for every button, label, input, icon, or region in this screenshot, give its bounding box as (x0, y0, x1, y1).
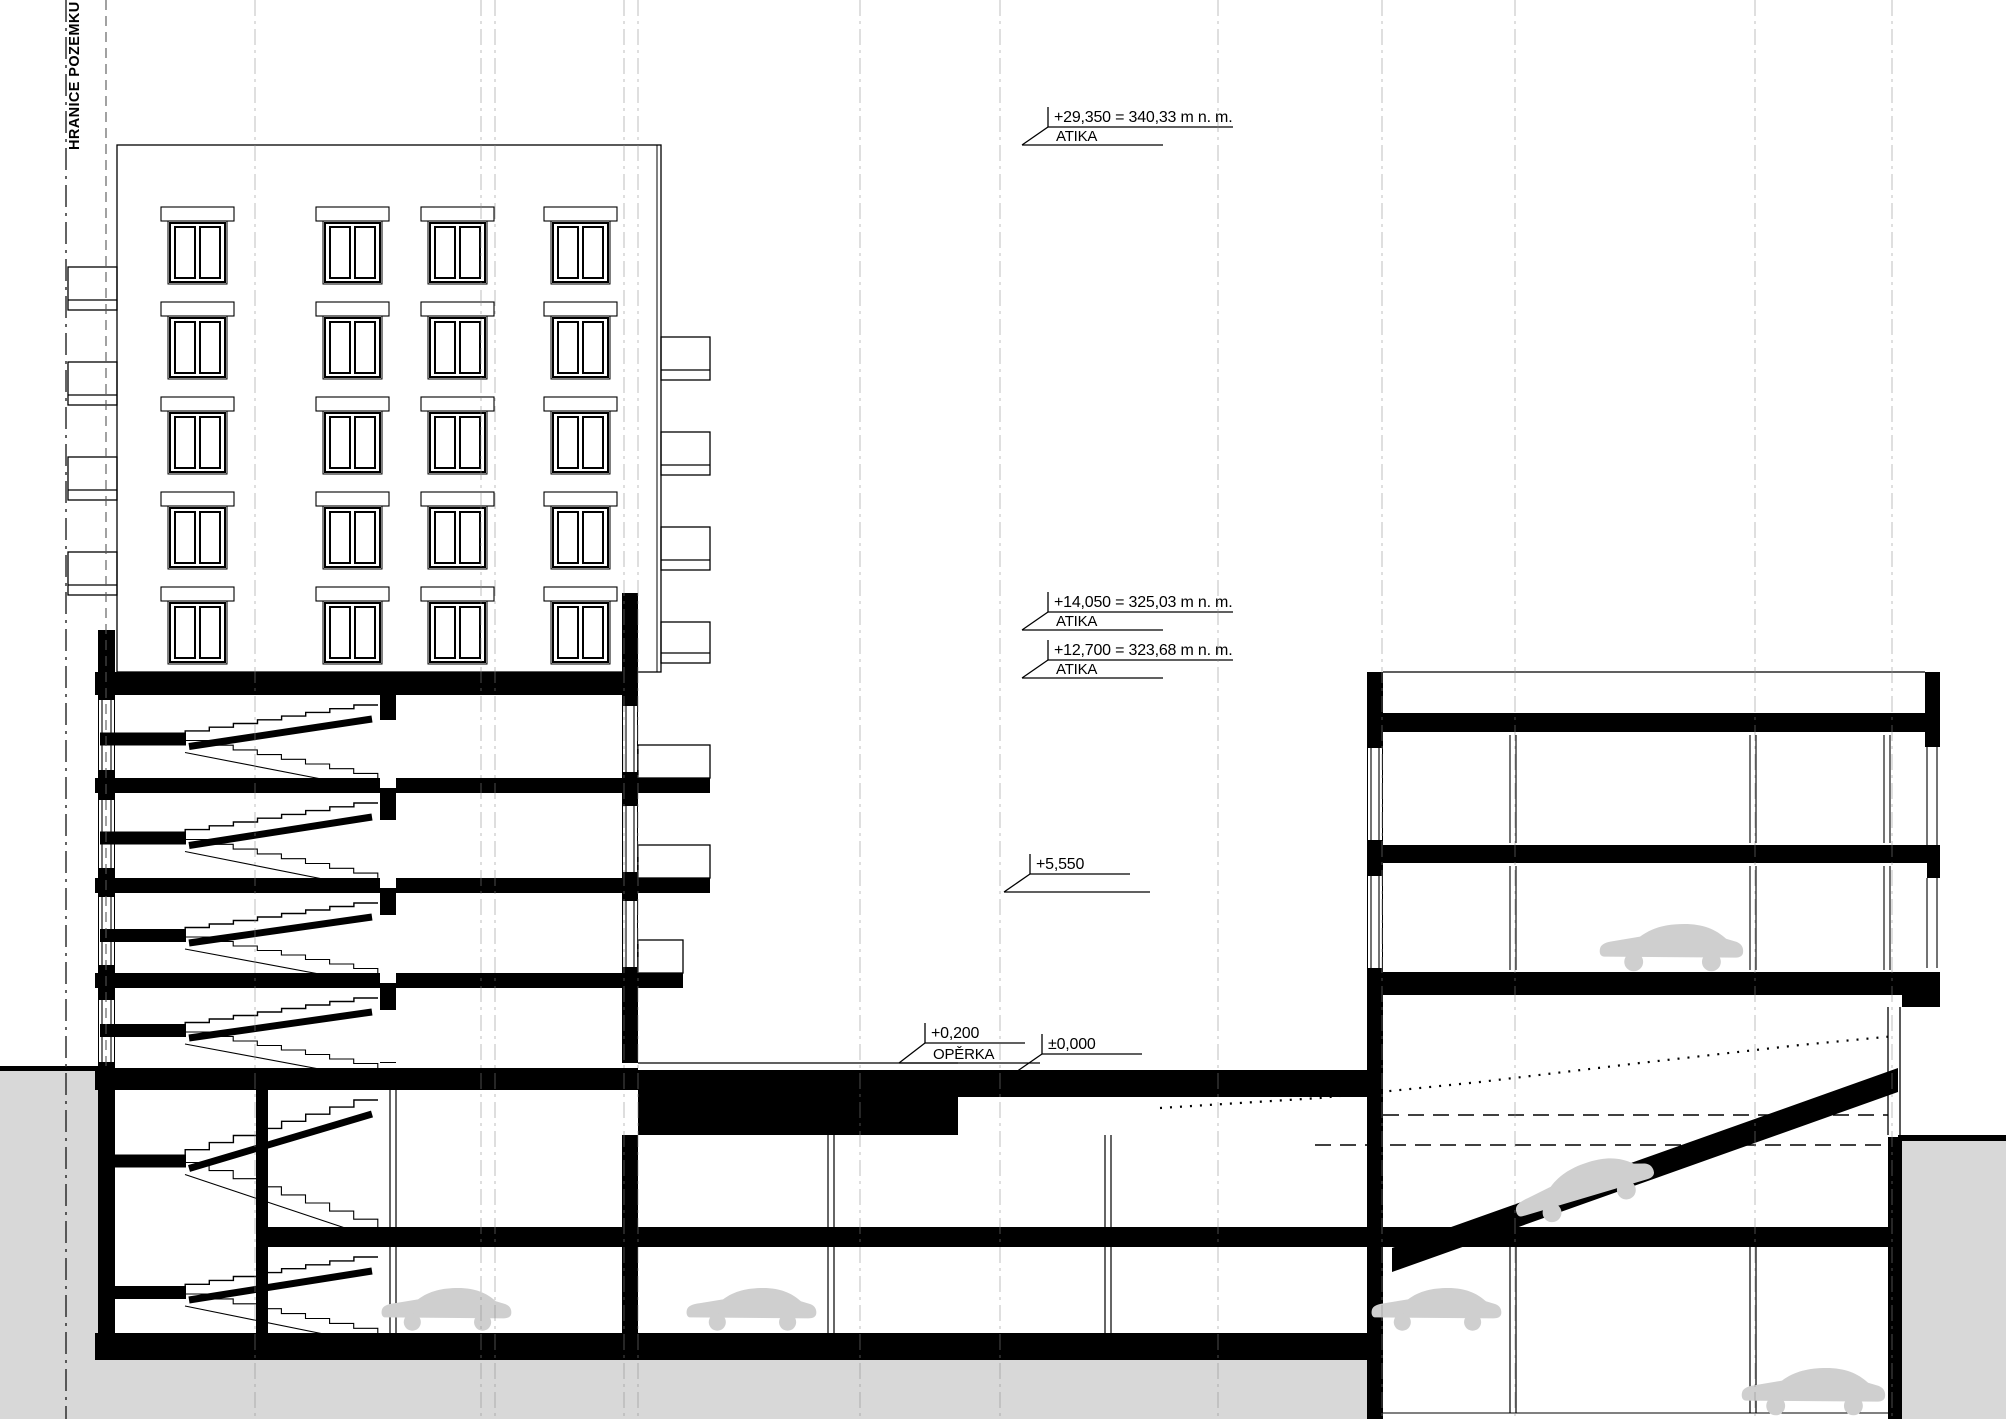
facade-window-frame (325, 318, 380, 377)
level-marker-atika-14050: +14,050 = 325,03 m n. m. ATIKA (1022, 592, 1233, 630)
scissor-stairs (100, 705, 378, 1345)
facade-window-frame (325, 508, 380, 567)
facade-window-pane (558, 512, 578, 563)
level-marker-operka-0200: +0,200 OPĚRKA (899, 1023, 1040, 1063)
facade-window-pane (583, 417, 603, 468)
facade-window-frame (325, 603, 380, 662)
facade-window-pane (460, 417, 480, 468)
marker-flag-diagonal (1022, 127, 1048, 145)
balcony-section (638, 845, 710, 878)
stair-landing-slab (100, 1155, 186, 1168)
facade-window-pane (460, 227, 480, 278)
level-marker-atika-29350: +29,350 = 340,33 m n. m. ATIKA (1022, 107, 1233, 145)
facade-window-frame (325, 413, 380, 472)
right-building-roof-slab (1383, 713, 1940, 732)
facade-window-pane (330, 417, 350, 468)
facade-window-outer (168, 411, 227, 474)
left-wing-roof-slab (95, 672, 638, 695)
facade-window-outer (428, 221, 487, 284)
facade-window-lintel (544, 492, 617, 506)
wall-window-gap (1368, 876, 1382, 968)
facade-window-outer (428, 506, 487, 569)
facade-window-frame (430, 508, 485, 567)
facade-window-outer (168, 316, 227, 379)
stair-flight-slab (189, 719, 372, 747)
right-building-floor-slab (1383, 845, 1940, 863)
facade-window-pane (558, 227, 578, 278)
facade-window-outer (168, 506, 227, 569)
marker-name: ATIKA (1056, 128, 1097, 145)
wall-window-gap (1924, 878, 1940, 968)
facade-window-pane (200, 512, 220, 563)
facade-window-pane (200, 322, 220, 373)
terrain-left-surface-line (0, 1066, 100, 1071)
stair-flight-slab (189, 1271, 372, 1300)
balcony-west (68, 457, 117, 500)
balcony-section (638, 940, 683, 973)
marker-flag-diagonal (1022, 660, 1048, 678)
facade-window-outer (323, 411, 382, 474)
facade-window-outer (323, 601, 382, 664)
facade-window-lintel (421, 302, 494, 316)
facade-window-lintel (161, 302, 234, 316)
interior-door-gap (380, 915, 396, 983)
interior-door-gap (380, 820, 396, 888)
facade-window-lintel (161, 587, 234, 601)
facade-window-outer (323, 316, 382, 379)
section-cut-elements (95, 593, 1940, 1419)
basement-b1-slab (268, 1227, 1902, 1247)
facade-window-lintel (316, 587, 389, 601)
level-marker-atika-12700: +12,700 = 323,68 m n. m. ATIKA (1022, 640, 1233, 678)
facade-window-outer (168, 601, 227, 664)
stair-flight-steps-far (185, 1294, 378, 1333)
facade-window-outer (551, 411, 610, 474)
balcony-west (68, 362, 117, 405)
facade-window-outer (168, 221, 227, 284)
facade-window-outer (428, 601, 487, 664)
facade-window-lintel (421, 397, 494, 411)
facade-window-lintel (421, 492, 494, 506)
facade-window-pane (583, 607, 603, 658)
marker-value: +14,050 = 325,03 m n. m. (1054, 594, 1232, 611)
facade-window-pane (435, 512, 455, 563)
basement-bottom-slab (95, 1333, 1367, 1360)
facade-window-pane (175, 607, 195, 658)
marker-value: +0,200 (931, 1025, 979, 1042)
facade-window-outer (551, 601, 610, 664)
facade-window-outer (551, 221, 610, 284)
stair-landing-slab (100, 1024, 186, 1037)
wall-window-gap (623, 901, 637, 967)
facade-window-pane (558, 417, 578, 468)
stair-flight-slab (189, 917, 372, 943)
marker-value: +29,350 = 340,33 m n. m. (1054, 109, 1232, 126)
stair-flight-steps (185, 1100, 378, 1157)
balcony-section (638, 745, 710, 778)
facade-window-pane (175, 512, 195, 563)
facade-window-pane (355, 322, 375, 373)
facade-window-frame (553, 318, 608, 377)
facade-window-frame (170, 318, 225, 377)
facade-window-lintel (421, 207, 494, 221)
facade-window-lintel (316, 492, 389, 506)
facade-window-frame (553, 508, 608, 567)
car-icon (687, 1288, 817, 1331)
left-wing-ground-slab (95, 1068, 638, 1090)
facade-window-pane (583, 322, 603, 373)
marker-value: +5,550 (1036, 856, 1084, 873)
right-building-slab-edge-block (1927, 863, 1940, 878)
facade-window-pane (558, 322, 578, 373)
facade-window-frame (170, 508, 225, 567)
facade-window-pane (200, 607, 220, 658)
facade-window-outer (428, 316, 487, 379)
facade-window-frame (430, 413, 485, 472)
stair-flight-steps-far (185, 1163, 378, 1228)
facade-window-pane (175, 417, 195, 468)
balcony-west (68, 267, 117, 310)
marker-value: ±0,000 (1048, 1036, 1096, 1053)
marker-name: OPĚRKA (933, 1046, 995, 1063)
facade-window-pane (460, 322, 480, 373)
facade-window-pane (200, 227, 220, 278)
facade-window-lintel (544, 587, 617, 601)
wall-window-gap (1368, 748, 1382, 840)
architectural-section-sheet: +29,350 = 340,33 m n. m. ATIKA +14,050 =… (0, 0, 2006, 1419)
right-building-slab-edge-block (1902, 988, 1940, 1007)
facade-window-frame (553, 413, 608, 472)
right-building-floor-slab (1383, 972, 1940, 995)
facade-window-lintel (544, 397, 617, 411)
facade-window-lintel (421, 587, 494, 601)
balcony-east (661, 622, 710, 663)
wall-window-gap (623, 806, 637, 872)
car-icon (1600, 924, 1743, 971)
facade-window-lintel (316, 302, 389, 316)
facade-window-pane (435, 607, 455, 658)
marker-value: +12,700 = 323,68 m n. m. (1054, 642, 1232, 659)
facade-window-pane (355, 512, 375, 563)
wall-window-gap (1924, 747, 1940, 845)
right-building-east-basement-wall (1888, 1137, 1902, 1419)
facade-window-pane (460, 607, 480, 658)
facade-window-outer (323, 221, 382, 284)
wall-window-gap (623, 706, 637, 772)
facade-window-pane (583, 227, 603, 278)
facade-window-lintel (161, 397, 234, 411)
facade-window-outer (428, 411, 487, 474)
facade-window-outer (551, 316, 610, 379)
stair-landing-slab (100, 832, 186, 845)
facade-window-frame (430, 603, 485, 662)
stair-landing-slab (100, 929, 186, 942)
facade-window-pane (355, 417, 375, 468)
facade-window-frame (170, 603, 225, 662)
right-building-parapet-endcap (1925, 672, 1940, 747)
courtyard-operka-slab (638, 1070, 958, 1135)
facade-window-pane (460, 512, 480, 563)
facade-window-pane (330, 227, 350, 278)
car-icon (382, 1288, 512, 1331)
balcony-west (68, 552, 117, 595)
facade-window-frame (430, 318, 485, 377)
facade-window-frame (553, 603, 608, 662)
terrain-right-surface-line (1898, 1135, 2006, 1141)
facade-window-lintel (161, 207, 234, 221)
facade-window-pane (435, 227, 455, 278)
left-wing-floor-slab (95, 778, 710, 793)
level-marker-0000: ±0,000 (1016, 1034, 1162, 1072)
facade-window-pane (558, 607, 578, 658)
balcony-east (661, 527, 710, 570)
facade-window-frame (325, 223, 380, 282)
facade-window-frame (430, 223, 485, 282)
interior-door-gap (380, 720, 396, 788)
axis-gridlines (255, 0, 1892, 1419)
interior-door-gap (380, 1010, 396, 1062)
marker-name: ATIKA (1056, 613, 1097, 630)
facade-window-lintel (161, 492, 234, 506)
facade-window-pane (330, 322, 350, 373)
stair-landing-slab (100, 1286, 186, 1299)
property-boundary-label: HRANICE POZEMKU (67, 1, 83, 150)
marker-name: ATIKA (1056, 661, 1097, 678)
section-drawing: +29,350 = 340,33 m n. m. ATIKA +14,050 =… (0, 0, 2006, 1419)
facade-window-outer (551, 506, 610, 569)
marker-flag-diagonal (1004, 874, 1030, 892)
courtyard-ground-slab (958, 1070, 1367, 1097)
level-markers: +29,350 = 340,33 m n. m. ATIKA +14,050 =… (899, 107, 1233, 1072)
marker-flag-diagonal (899, 1043, 925, 1063)
facade-window-outer (323, 506, 382, 569)
facade-window-frame (170, 223, 225, 282)
balcony-east (661, 432, 710, 475)
facade-window-pane (330, 512, 350, 563)
level-marker-5550: +5,550 (1004, 854, 1150, 892)
stair-flight-steps-far (185, 840, 378, 878)
facade-window-pane (435, 322, 455, 373)
car-icon (1742, 1368, 1885, 1415)
facade-window-lintel (316, 397, 389, 411)
stair-flight-slab (189, 817, 372, 846)
facade-window-lintel (544, 207, 617, 221)
balcony-east (661, 337, 710, 380)
facade-window-pane (200, 417, 220, 468)
facade-window-pane (175, 227, 195, 278)
facade-window-lintel (544, 302, 617, 316)
facade-window-pane (330, 607, 350, 658)
facade-window-frame (553, 223, 608, 282)
car-icon (1372, 1288, 1502, 1331)
facade-window-pane (355, 607, 375, 658)
facade-window-pane (435, 417, 455, 468)
facade-window-pane (583, 512, 603, 563)
facade-window-pane (175, 322, 195, 373)
stair-landing-slab (100, 733, 186, 746)
terrain-right-fill (1902, 1137, 2006, 1419)
stairwell-basement-wall (256, 1090, 268, 1333)
facade-window-lintel (316, 207, 389, 221)
facade-window-pane (355, 227, 375, 278)
stair-flight-slab (189, 1012, 372, 1038)
stair-flight-slab (189, 1114, 372, 1169)
facade-window-frame (170, 413, 225, 472)
left-wing-floor-slab (95, 878, 710, 893)
marker-flag-diagonal (1022, 612, 1048, 630)
